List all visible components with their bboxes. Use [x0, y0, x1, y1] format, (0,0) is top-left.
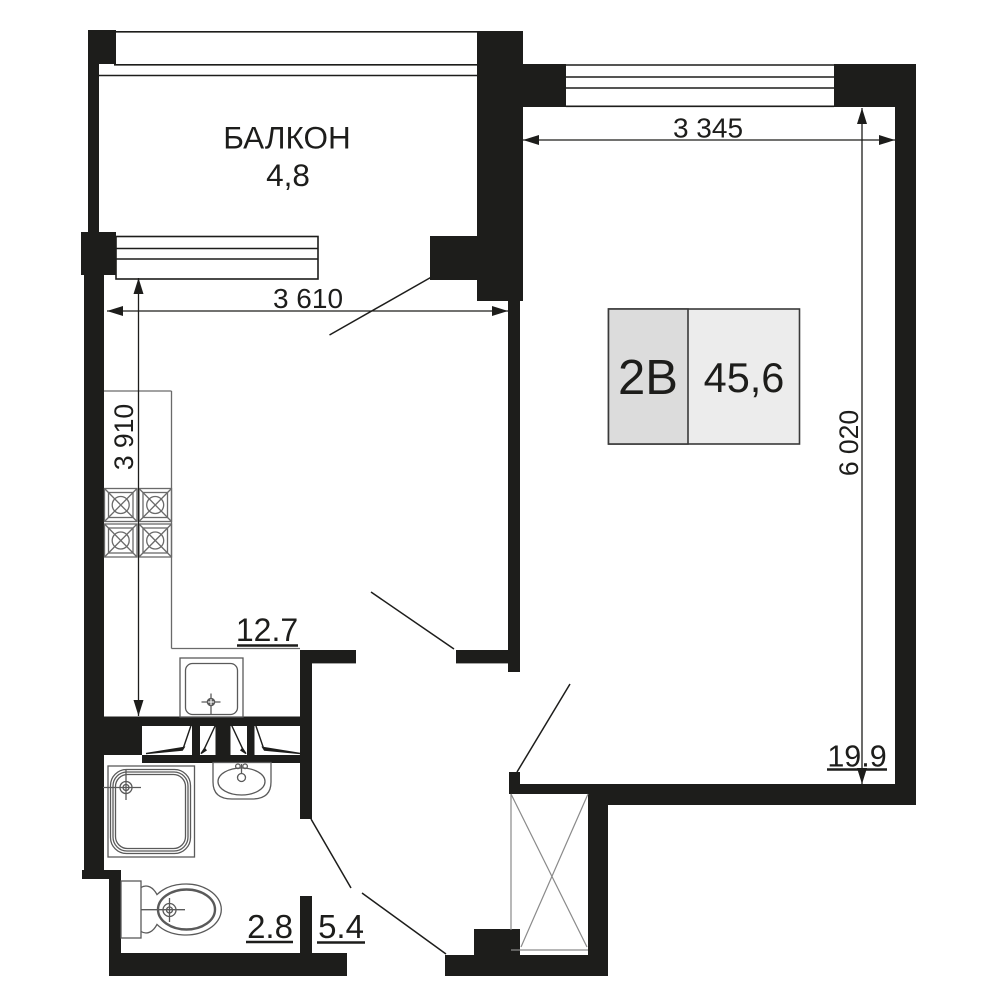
svg-text:3 610: 3 610	[273, 283, 343, 314]
svg-text:3 345: 3 345	[673, 113, 743, 144]
svg-text:БАЛКОН: БАЛКОН	[223, 120, 351, 156]
svg-text:2.8: 2.8	[247, 908, 293, 945]
svg-text:4,8: 4,8	[266, 157, 310, 193]
svg-text:5.4: 5.4	[318, 908, 364, 945]
svg-text:3 910: 3 910	[109, 404, 139, 470]
svg-text:2В: 2В	[618, 351, 678, 405]
svg-text:12.7: 12.7	[236, 612, 298, 648]
svg-text:45,6: 45,6	[704, 354, 785, 401]
svg-text:6 020: 6 020	[834, 410, 864, 476]
